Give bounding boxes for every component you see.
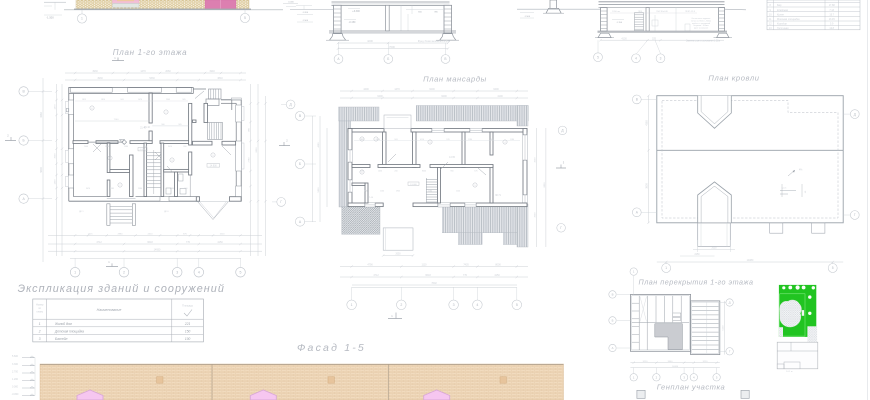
svg-text:6400: 6400 [493, 88, 499, 91]
svg-text:Г: Г [280, 200, 282, 204]
svg-text:-1.500: -1.500 [302, 20, 309, 22]
svg-text:4680: 4680 [318, 142, 320, 148]
svg-text:Гостиная: Гостиная [777, 27, 789, 30]
svg-text:2050: 2050 [395, 254, 401, 256]
svg-text:1: 1 [74, 270, 76, 274]
svg-text:План мансарды: План мансарды [423, 75, 487, 84]
svg-text:21.10: 21.10 [144, 126, 151, 129]
svg-text:Бассейн: Бассейн [55, 337, 68, 341]
svg-text:4712: 4712 [96, 241, 102, 244]
svg-text:2150: 2150 [694, 254, 700, 256]
svg-text:3: 3 [660, 56, 662, 60]
svg-text:Моечная площадка: Моечная площадка [777, 18, 800, 21]
svg-text:-0.800: -0.800 [12, 393, 19, 396]
svg-text:Кухня: Кухня [777, 13, 784, 16]
svg-text:2060: 2060 [143, 146, 147, 148]
svg-text:Жилой дом: Жилой дом [54, 322, 72, 326]
svg-text:5: 5 [516, 303, 518, 307]
svg-text:1470: 1470 [55, 104, 57, 110]
svg-text:4150: 4150 [494, 274, 500, 277]
svg-text:13.65: 13.65 [449, 157, 455, 159]
svg-text:ЖБ: ЖБ [434, 12, 438, 14]
svg-text:-1.150: -1.150 [616, 22, 623, 24]
svg-text:Детская площадка: Детская площадка [54, 329, 84, 333]
svg-text:7140: 7140 [114, 119, 120, 121]
svg-text:Генплан участка: Генплан участка [657, 383, 726, 392]
svg-text:В: В [612, 292, 614, 296]
svg-text:6618: 6618 [425, 274, 431, 277]
svg-text:1380: 1380 [170, 188, 174, 190]
svg-text:4500: 4500 [534, 157, 536, 163]
svg-text:грунт основания: грунт основания [694, 27, 708, 29]
svg-text:-0.150: -0.150 [349, 21, 356, 24]
svg-text:7.13: 7.13 [829, 9, 834, 12]
svg-text:7602: 7602 [431, 282, 437, 285]
svg-text:960: 960 [450, 171, 453, 173]
svg-text:675: 675 [474, 171, 477, 173]
svg-text:1: 1 [665, 266, 667, 270]
svg-text:Г: Г [560, 226, 562, 230]
svg-text:4400: 4400 [363, 88, 369, 91]
svg-text:14.1 м: 14.1 м [786, 371, 793, 373]
svg-text:1: 1 [351, 303, 353, 307]
svg-text:9800: 9800 [544, 182, 546, 188]
svg-text:ПК87-12.8: ПК87-12.8 [685, 11, 696, 13]
svg-text:5.600: 5.600 [12, 355, 19, 358]
svg-text:3840: 3840 [217, 77, 223, 80]
svg-text:0.000: 0.000 [12, 385, 19, 388]
svg-text:0.000: 0.000 [288, 1, 294, 3]
svg-text:Д: Д [729, 301, 731, 305]
svg-text:8000: 8000 [422, 171, 426, 173]
svg-text:3220: 3220 [703, 361, 709, 363]
svg-text:8000: 8000 [495, 264, 501, 267]
svg-text:План перекрытия 1-го этажа: План перекрытия 1-го этажа [639, 278, 754, 287]
svg-text:7435: 7435 [463, 264, 469, 267]
svg-text:2980: 2980 [118, 234, 124, 236]
svg-text:Г: Г [854, 213, 856, 217]
svg-text:14080: 14080 [747, 259, 754, 262]
svg-text:План кровли: План кровли [708, 74, 759, 83]
svg-text:плану: плану [36, 311, 43, 314]
svg-text:Бар: Бар [777, 4, 782, 7]
svg-text:В: В [636, 98, 638, 102]
svg-text:2980: 2980 [138, 188, 142, 190]
svg-text:5130: 5130 [723, 325, 725, 331]
svg-text:План 1-го этажа: План 1-го этажа [113, 48, 187, 57]
svg-text:770: 770 [186, 241, 191, 244]
svg-text:1520: 1520 [220, 234, 226, 236]
svg-text:ДК 6: ДК 6 [164, 211, 169, 213]
svg-text:3: 3 [176, 270, 178, 274]
svg-text:1940: 1940 [209, 70, 215, 73]
svg-text:2: 2 [400, 303, 402, 307]
svg-text:5: 5 [832, 266, 834, 270]
svg-text:1: 1 [81, 17, 83, 21]
svg-text:14.900: 14.900 [210, 165, 218, 167]
svg-text:17.88: 17.88 [829, 4, 836, 7]
svg-text:5: 5 [244, 16, 246, 20]
svg-text:4712: 4712 [373, 274, 379, 277]
svg-text:221: 221 [184, 322, 191, 326]
svg-text:6200: 6200 [441, 95, 447, 98]
svg-text:3: 3 [39, 337, 41, 341]
svg-text:А: А [612, 346, 614, 350]
svg-text:3010: 3010 [168, 146, 172, 148]
svg-text:2905: 2905 [396, 191, 400, 193]
svg-text:2780: 2780 [249, 157, 251, 163]
svg-text:6618: 6618 [147, 241, 153, 244]
svg-text:2: 2 [123, 270, 125, 274]
svg-text:5800: 5800 [318, 187, 320, 193]
svg-text:5330: 5330 [149, 77, 155, 80]
svg-text:9800: 9800 [256, 147, 258, 153]
svg-text:3960: 3960 [668, 361, 674, 363]
svg-text:4930: 4930 [97, 77, 103, 80]
svg-text:745: 745 [364, 191, 367, 193]
svg-text:1160: 1160 [380, 191, 384, 193]
svg-text:14080: 14080 [672, 366, 679, 368]
svg-text:4: 4 [635, 56, 637, 60]
svg-text:6200: 6200 [429, 88, 435, 91]
svg-text:4380: 4380 [646, 120, 649, 126]
svg-text:Замена грунта основания 1.52м: Замена грунта основания 1.52м [686, 41, 721, 43]
svg-text:7600: 7600 [389, 45, 395, 49]
svg-text:-1.500: -1.500 [524, 16, 531, 18]
svg-text:4200: 4200 [367, 39, 373, 43]
svg-text:1450: 1450 [378, 171, 382, 173]
svg-text:В: В [444, 57, 446, 61]
svg-text:+3.300: +3.300 [352, 10, 360, 13]
svg-text:4150: 4150 [217, 241, 223, 244]
svg-text:13.45: 13.45 [829, 18, 836, 21]
svg-text:3220: 3220 [643, 361, 649, 363]
svg-text:1470: 1470 [394, 88, 400, 91]
svg-text:1.200: 1.200 [12, 378, 19, 381]
svg-text:14930: 14930 [154, 248, 161, 251]
svg-text:Б: Б [387, 57, 389, 61]
svg-text:38.71: 38.71 [495, 195, 501, 197]
svg-text:4130: 4130 [621, 37, 627, 40]
svg-text:1400: 1400 [55, 179, 57, 185]
svg-text:3.300: 3.300 [12, 363, 19, 366]
svg-text:13.080: 13.080 [410, 184, 417, 186]
svg-text:325: 325 [652, 37, 657, 40]
svg-text:150: 150 [185, 329, 191, 333]
svg-text:Б: Б [612, 318, 614, 322]
svg-text:4%: 4% [799, 170, 802, 172]
svg-text:5: 5 [240, 270, 242, 274]
svg-text:3000: 3000 [55, 153, 57, 159]
svg-text:1193: 1193 [360, 171, 364, 173]
svg-text:100: 100 [185, 337, 191, 341]
svg-text:1585: 1585 [110, 188, 114, 190]
svg-text:4790: 4790 [367, 264, 373, 267]
svg-text:1180: 1180 [428, 191, 432, 193]
svg-text:2.700: 2.700 [12, 370, 19, 373]
svg-text:1200 пм: 1200 пм [612, 11, 620, 13]
svg-text:2440: 2440 [84, 146, 88, 148]
svg-text:-1.500: -1.500 [46, 15, 54, 19]
svg-text:3470: 3470 [86, 188, 90, 190]
svg-text:770: 770 [463, 274, 468, 277]
svg-text:15.7: 15.7 [829, 13, 834, 16]
svg-text:1100: 1100 [105, 146, 109, 148]
svg-text:1470: 1470 [140, 70, 146, 73]
svg-text:4930: 4930 [92, 70, 98, 73]
svg-text:1: 1 [39, 322, 41, 326]
svg-text:Площадь: Площадь [182, 305, 194, 308]
svg-text:4100: 4100 [497, 95, 503, 98]
svg-text:5: 5 [597, 55, 599, 59]
svg-text:2060: 2060 [165, 70, 171, 73]
svg-text:Кладовая: Кладовая [777, 9, 789, 12]
svg-text:4680: 4680 [40, 112, 43, 118]
svg-text:ДК 1: ДК 1 [79, 211, 84, 213]
svg-text:960: 960 [184, 188, 187, 190]
svg-text:Фунд. блоки железобет. В-25м: Фунд. блоки железобет. В-25м [418, 40, 451, 43]
svg-text:1100: 1100 [456, 191, 460, 193]
svg-text:1415: 1415 [88, 234, 94, 236]
svg-text:12.8: 12.8 [829, 27, 834, 30]
svg-text:Наименование: Наименование [97, 308, 122, 312]
svg-text:5800: 5800 [40, 167, 43, 173]
svg-text:2050: 2050 [711, 248, 717, 250]
svg-text:ПН2 80х240: ПН2 80х240 [656, 11, 668, 13]
svg-text:890: 890 [183, 146, 186, 148]
svg-text:1380: 1380 [124, 146, 128, 148]
svg-text:4: 4 [198, 270, 200, 274]
svg-text:2410: 2410 [148, 234, 154, 236]
svg-text:Фасад 1-5: Фасад 1-5 [297, 342, 366, 354]
svg-text:-1.200: -1.200 [302, 12, 309, 14]
svg-text:3000: 3000 [534, 212, 536, 218]
svg-text:6400: 6400 [377, 95, 383, 98]
svg-text:0.000: 0.000 [140, 149, 146, 151]
svg-text:4: 4 [476, 303, 478, 307]
svg-text:3800: 3800 [646, 183, 649, 189]
svg-text:2: 2 [38, 329, 41, 333]
svg-text:3: 3 [453, 303, 455, 307]
svg-text:200: 200 [394, 171, 397, 173]
svg-text:Экспликация зданий и сооруж: Экспликация зданий и сооружений [18, 283, 225, 295]
svg-text:Коридор: Коридор [777, 22, 787, 25]
svg-text:1110: 1110 [422, 264, 428, 267]
